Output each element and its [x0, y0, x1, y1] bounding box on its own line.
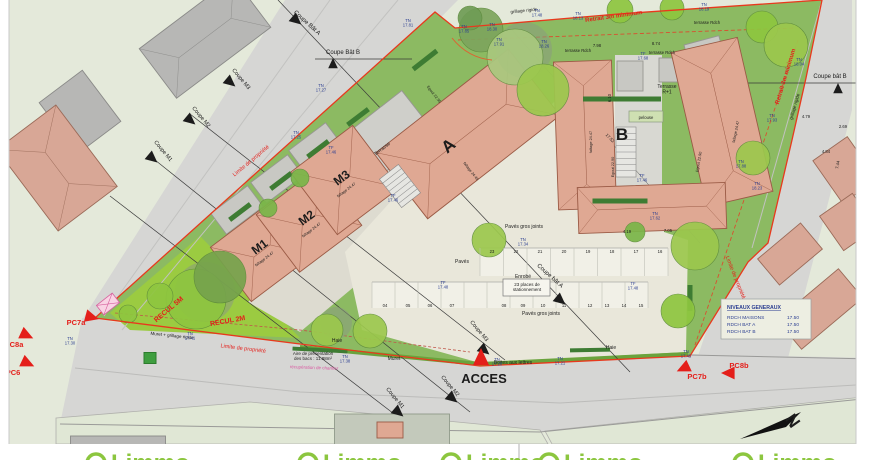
tree	[119, 305, 137, 323]
plan-label: 10	[541, 303, 546, 308]
plan-label: 7.05	[664, 228, 673, 233]
plan-label: Egout 22.90	[611, 157, 615, 177]
house-sw-core-outline	[377, 422, 403, 438]
left-margin	[0, 0, 9, 460]
plan-label: Haie	[332, 338, 343, 344]
niveaux-row-label: RDCH BAT A	[727, 322, 756, 328]
plan-label: Coupe Bât B	[326, 50, 360, 56]
plan-label: 2.69	[839, 124, 848, 129]
plan-label: 07	[450, 303, 455, 308]
plan-label: PC8b	[729, 361, 749, 370]
plan-label: Aire de présentationdes bacs : 11.88m²	[293, 351, 334, 361]
plan-label: 04	[383, 303, 388, 308]
plan-label: 14	[622, 303, 627, 308]
annex-b1	[617, 61, 643, 91]
house-sw-core	[377, 422, 403, 438]
plan-label: 06	[428, 303, 433, 308]
plan-label: terrasse Rdch	[649, 50, 676, 55]
brand-logo-text: Limmo	[758, 450, 837, 460]
plan-label: 6.10	[607, 93, 612, 102]
plan-label: 4.19	[623, 229, 632, 234]
right-margin	[856, 0, 872, 460]
plan-label: 18	[610, 249, 615, 254]
niveaux-row-value: 17.50	[787, 329, 799, 335]
niveaux-row-label: RDCH MAISONS	[727, 315, 764, 321]
plan-label: Pavés	[455, 259, 469, 265]
annex-b1-outline	[617, 61, 643, 91]
plan-label: 7.98	[593, 43, 602, 48]
plan-label: 19	[586, 249, 591, 254]
tree	[194, 251, 246, 303]
site-plan: RECUL 5MRECUL 2MLimite de propriétéLimit…	[0, 0, 872, 460]
plan-label: 17	[634, 249, 639, 254]
plan-label: Muret	[388, 356, 401, 362]
plan-label: terrasse Rdch	[565, 48, 592, 53]
plan-label: terrasse Rdch	[694, 20, 721, 25]
plan-label: B	[616, 125, 628, 144]
brand-logo-text: Limmo	[564, 450, 643, 460]
tree	[736, 141, 770, 175]
plan-label: 05	[406, 303, 411, 308]
tree	[291, 169, 309, 187]
plan-label: 4.84	[822, 149, 831, 154]
plan-label: 12	[588, 303, 593, 308]
plan-label: pelouse	[639, 115, 654, 120]
brand-logo-text: Limmo	[466, 450, 545, 460]
hedge	[593, 199, 648, 204]
plan-label: ACCES	[461, 371, 507, 386]
plan-label: Enrobé	[515, 274, 531, 280]
plan-label: 11	[562, 303, 567, 308]
hedge	[583, 97, 661, 102]
brand-logo-text: Limmo	[111, 450, 190, 460]
tree	[671, 222, 719, 270]
brand-logo-text: Limmo	[323, 450, 402, 460]
site-plan-canvas: RECUL 5MRECUL 2MLimite de propriétéLimit…	[0, 0, 872, 460]
plan-label: 23 places destationnement	[513, 282, 542, 292]
niveaux-row-label: RDCH BAT B	[727, 329, 756, 335]
plan-label: faîtage 24.47	[589, 131, 593, 153]
plan-label: 22	[514, 249, 519, 254]
plan-label: PC7b	[687, 372, 707, 381]
plan-label: 09	[521, 303, 526, 308]
plan-label: Coupe bât B	[813, 74, 846, 80]
niveaux-row-value: 17.50	[787, 322, 799, 328]
marker-green-square	[144, 353, 156, 364]
niveaux-row-value: 17.50	[787, 315, 799, 321]
plan-label: 08	[502, 303, 507, 308]
plan-label: Pavés gros joints	[505, 224, 544, 230]
tree	[353, 314, 387, 348]
tree	[259, 199, 277, 217]
tree	[661, 294, 695, 328]
plan-label: Pavés gros joints	[522, 311, 561, 317]
plan-label: 20	[562, 249, 567, 254]
tree	[517, 64, 569, 116]
plan-label: 13	[605, 303, 610, 308]
plan-label: 16	[658, 249, 663, 254]
hedge	[570, 348, 610, 353]
plan-label: 4.79	[802, 114, 811, 119]
plan-label: PC7a	[67, 318, 87, 327]
plan-label: 23	[490, 249, 495, 254]
plan-label: 15	[639, 303, 644, 308]
plan-label: 21	[538, 249, 543, 254]
niveaux-title: NIVEAUX GENERAUX	[727, 305, 781, 311]
plan-label: Haie	[606, 345, 617, 351]
plan-label: 8.74	[652, 41, 661, 46]
